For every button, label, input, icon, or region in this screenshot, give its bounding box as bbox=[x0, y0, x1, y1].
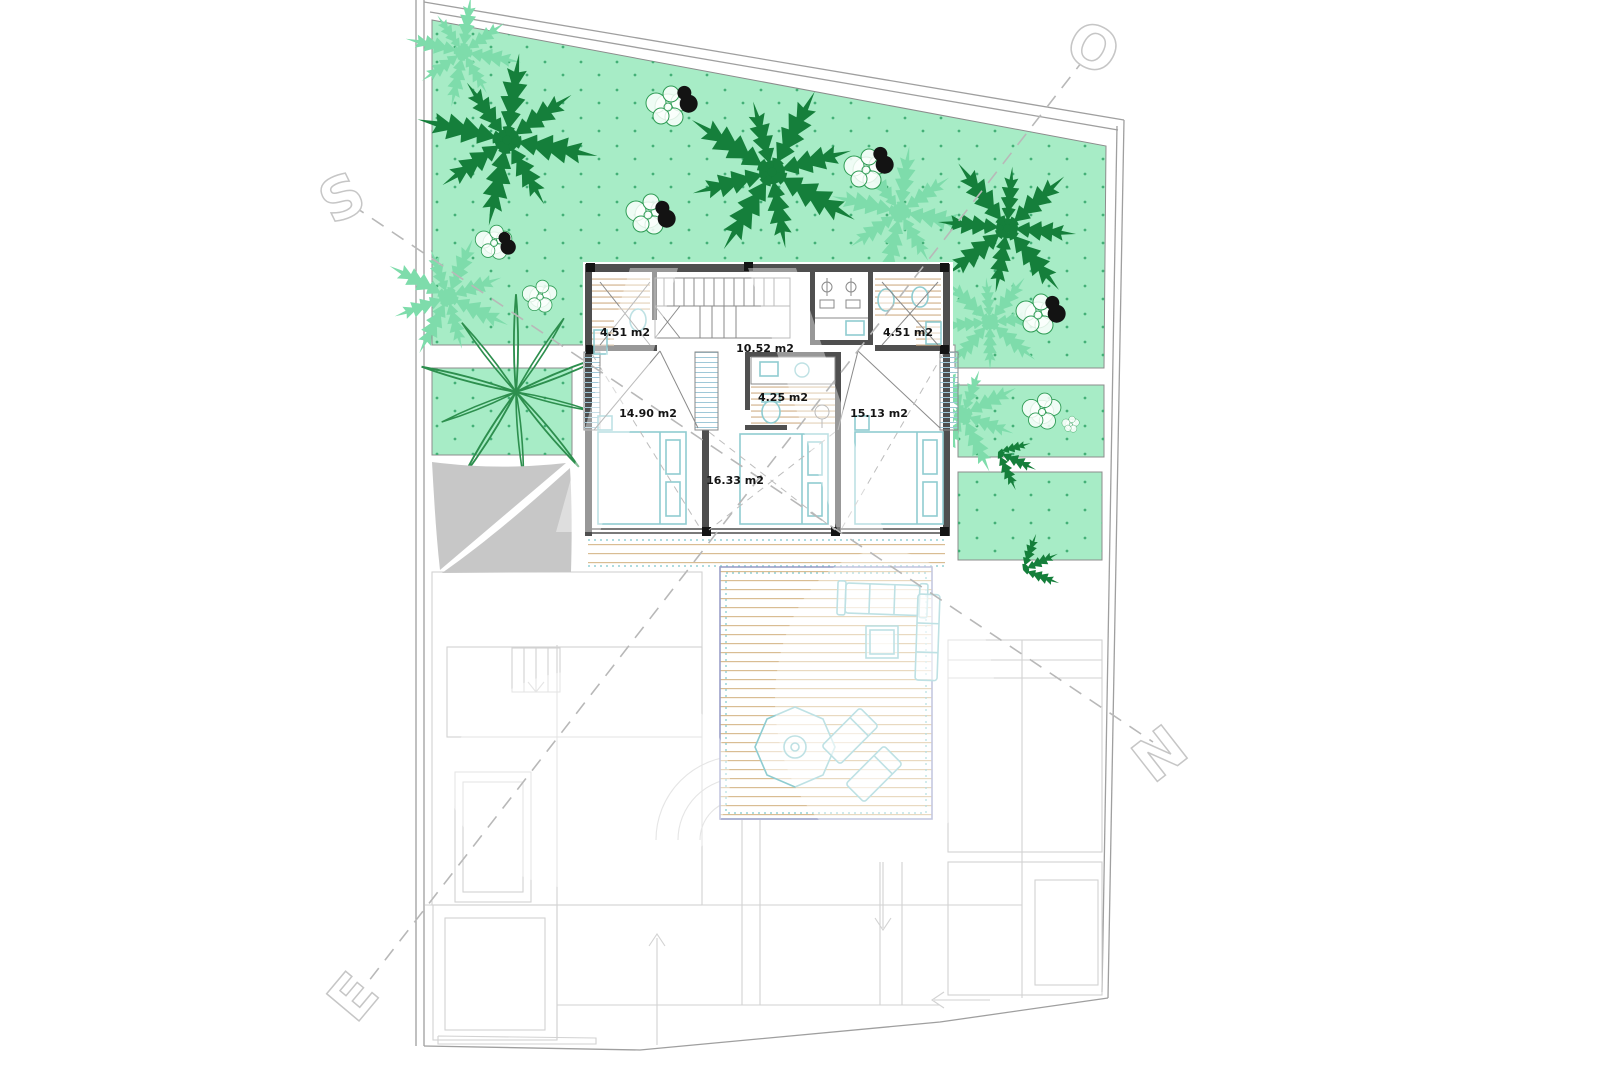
label-wardrobe-left: 4.51 m2 bbox=[600, 326, 650, 339]
label-hall: 10.52 m2 bbox=[736, 342, 794, 355]
label-bedroom-left: 14.90 m2 bbox=[619, 407, 677, 420]
house-plan bbox=[450, 262, 995, 890]
compass-letter-south: S bbox=[308, 158, 375, 237]
compass-letter-north: N bbox=[1120, 712, 1200, 795]
shade-sail bbox=[432, 462, 572, 573]
label-bathroom: 4.25 m2 bbox=[758, 391, 808, 404]
compass-letter-east: E bbox=[314, 960, 392, 1034]
compass-letter-west: O bbox=[1055, 6, 1130, 89]
label-bedroom-middle: 16.33 m2 bbox=[706, 474, 764, 487]
label-wardrobe-right: 4.51 m2 bbox=[883, 326, 933, 339]
label-bedroom-right: 15.13 m2 bbox=[850, 407, 908, 420]
site-plan-canvas: O S N E 4.51 m2 10.52 m2 4.51 m2 14.90 m… bbox=[0, 0, 1600, 1067]
